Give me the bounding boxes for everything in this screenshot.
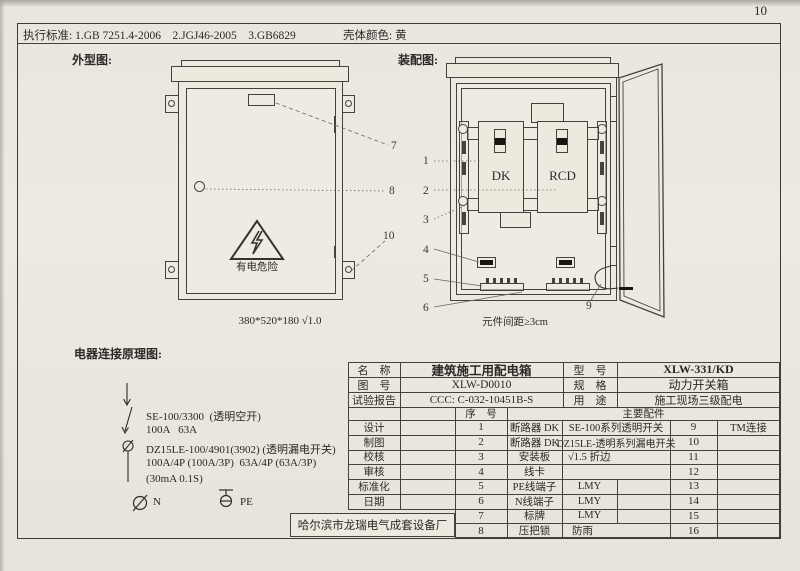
breaker-rcd-toggle-band (557, 138, 567, 145)
info-value: CCC: C-032-10451B-S (400, 392, 563, 407)
part-no2: 12 (670, 464, 717, 479)
door-hinge-mark (334, 116, 336, 133)
nameplate-window (248, 94, 275, 106)
part-name: 断路器 DK (507, 420, 562, 435)
schematic-line: 100A/4P (100A/3P) 63A/4P (63A/3P) (146, 457, 316, 469)
signature-label: 审核 (348, 464, 400, 479)
terminal-pin (573, 278, 576, 283)
mount-hole (345, 266, 352, 273)
spec-table: 名 称 建筑施工用配电箱 型 号 XLW-331/KD 图 号 XLW-D001… (348, 362, 780, 538)
part-no2: 11 (670, 450, 717, 465)
part-desc: 防雨 (562, 523, 670, 538)
terminal-pin (493, 278, 496, 283)
assembly-note: 元件间距≥3cm (455, 315, 575, 328)
parts-header: 主要配件 (507, 407, 780, 420)
seq-header: 序 号 (455, 407, 507, 420)
header-strip-divider (17, 43, 781, 44)
part-name: PE线端子 (507, 479, 562, 494)
schematic-line: DZ15LE-100/4901(3902) (透明漏电开关) (146, 441, 336, 457)
exterior-figure-title: 外型图: (72, 51, 112, 68)
terminal-pin (559, 278, 562, 283)
schematic-title: 电器连接原理图: (74, 345, 162, 362)
terminal-pin (580, 278, 583, 283)
callout-10: 10 (383, 230, 395, 242)
page-number: 10 (754, 3, 767, 19)
cable-clamp-slot (480, 260, 493, 265)
part-name: 压把锁 (507, 523, 562, 538)
info-label: 规 格 (563, 377, 617, 392)
neutral-label: N (153, 496, 161, 508)
standards-text: 执行标准: 1.GB 7251.4-2006 2.JGJ46-2005 3.GB… (23, 27, 296, 43)
rail-slot (600, 162, 604, 175)
callout-6: 6 (423, 302, 429, 314)
part-no: 4 (455, 464, 507, 479)
terminal-pin (500, 278, 503, 283)
part-desc: √1.5 折边 (562, 450, 670, 465)
shell-color-text: 壳体颜色: 黄 (343, 27, 407, 43)
backing-plate-tab (531, 103, 564, 123)
part-no2: 9 (670, 420, 717, 435)
rail-slot (600, 212, 604, 225)
part-no: 5 (455, 479, 507, 494)
callout-7: 7 (391, 140, 397, 152)
schematic-line: SE-100/3300 (透明空开) (146, 408, 261, 424)
terminal-pin (566, 278, 569, 283)
info-value: 建筑施工用配电箱 (400, 362, 563, 377)
part-desc: DZ15LE-透明系列漏电开关 (562, 435, 670, 450)
terminal-pin (514, 278, 517, 283)
part-name: 断路器 DK (507, 435, 562, 450)
signature-label: 校核 (348, 450, 400, 465)
backing-plate-tab (500, 212, 531, 228)
part-name: N线端子 (507, 494, 562, 509)
terminal-pin (552, 278, 555, 283)
exterior-roof (171, 66, 349, 82)
exterior-dimension: 380*520*180 √1.0 (220, 314, 340, 327)
scanned-spec-sheet-page: { "page": { "number": "10" }, "header": … (0, 0, 800, 571)
cable-clamp-slot (559, 260, 572, 265)
mount-hole (168, 266, 175, 273)
part-desc: SE-100系列透明开关 (562, 420, 670, 435)
callout-5: 5 (423, 273, 429, 285)
info-value: XLW-D0010 (400, 377, 563, 392)
hinge (610, 246, 617, 266)
terminal-pin (507, 278, 510, 283)
part-desc: LMY (562, 479, 617, 494)
rail-slot (462, 162, 466, 175)
callout-1: 1 (423, 155, 429, 167)
breaker-dk-toggle-band (495, 138, 505, 145)
callout-8: 8 (389, 185, 395, 197)
part-no: 1 (455, 420, 507, 435)
signature-label: 制图 (348, 435, 400, 450)
terminal-strip (480, 283, 524, 291)
info-value: 施工现场三级配电 (617, 392, 780, 407)
warning-text: 有电危险 (222, 260, 292, 272)
part-no: 3 (455, 450, 507, 465)
info-value: XLW-331/KD (617, 362, 780, 377)
door-hinge-mark (334, 246, 336, 258)
part-name: 安装板 (507, 450, 562, 465)
rail-slot (600, 141, 604, 154)
part-no2: 15 (670, 509, 717, 524)
part-no: 2 (455, 435, 507, 450)
info-label: 名 称 (348, 362, 400, 377)
mount-hole (168, 100, 175, 107)
high-voltage-warning-icon (229, 219, 285, 261)
info-label: 型 号 (563, 362, 617, 377)
info-label: 用 途 (563, 392, 617, 407)
part-no: 7 (455, 509, 507, 524)
part-no2: 16 (670, 523, 717, 538)
rail-slot (462, 141, 466, 154)
assembly-figure-title: 装配图: (398, 51, 438, 68)
part-name: 标牌 (507, 509, 562, 524)
schematic-line: 100A 63A (146, 424, 197, 436)
signature-label: 标准化 (348, 479, 400, 494)
hinge (610, 96, 617, 122)
part-no2: 14 (670, 494, 717, 509)
schematic-line: (30mA 0.1S) (146, 473, 203, 485)
info-label: 试验报告 (348, 392, 400, 407)
breaker-rcd-label: RCD (537, 168, 588, 184)
signature-label: 设计 (348, 420, 400, 435)
callout-4: 4 (423, 244, 429, 256)
info-label: 图 号 (348, 377, 400, 392)
breaker-dk-label: DK (478, 168, 524, 184)
part-desc: LMY (562, 494, 617, 509)
part-no2: 13 (670, 479, 717, 494)
part-desc2: TM连接 (717, 420, 780, 435)
part-no2: 10 (670, 435, 717, 450)
part-desc: LMY (562, 509, 617, 524)
pe-label: PE (240, 496, 253, 508)
callout-3: 3 (423, 214, 429, 226)
rail-slot (462, 212, 466, 225)
mount-hole (345, 100, 352, 107)
part-name: 线卡 (507, 464, 562, 479)
part-no: 8 (455, 523, 507, 538)
callout-2: 2 (423, 185, 429, 197)
callout-9: 9 (586, 300, 592, 312)
assembly-roof (446, 63, 619, 78)
door-lock (194, 181, 205, 192)
signature-label: 日期 (348, 494, 400, 509)
info-value: 动力开关箱 (617, 377, 780, 392)
terminal-strip (546, 283, 590, 291)
part-no: 6 (455, 494, 507, 509)
terminal-pin (486, 278, 489, 283)
